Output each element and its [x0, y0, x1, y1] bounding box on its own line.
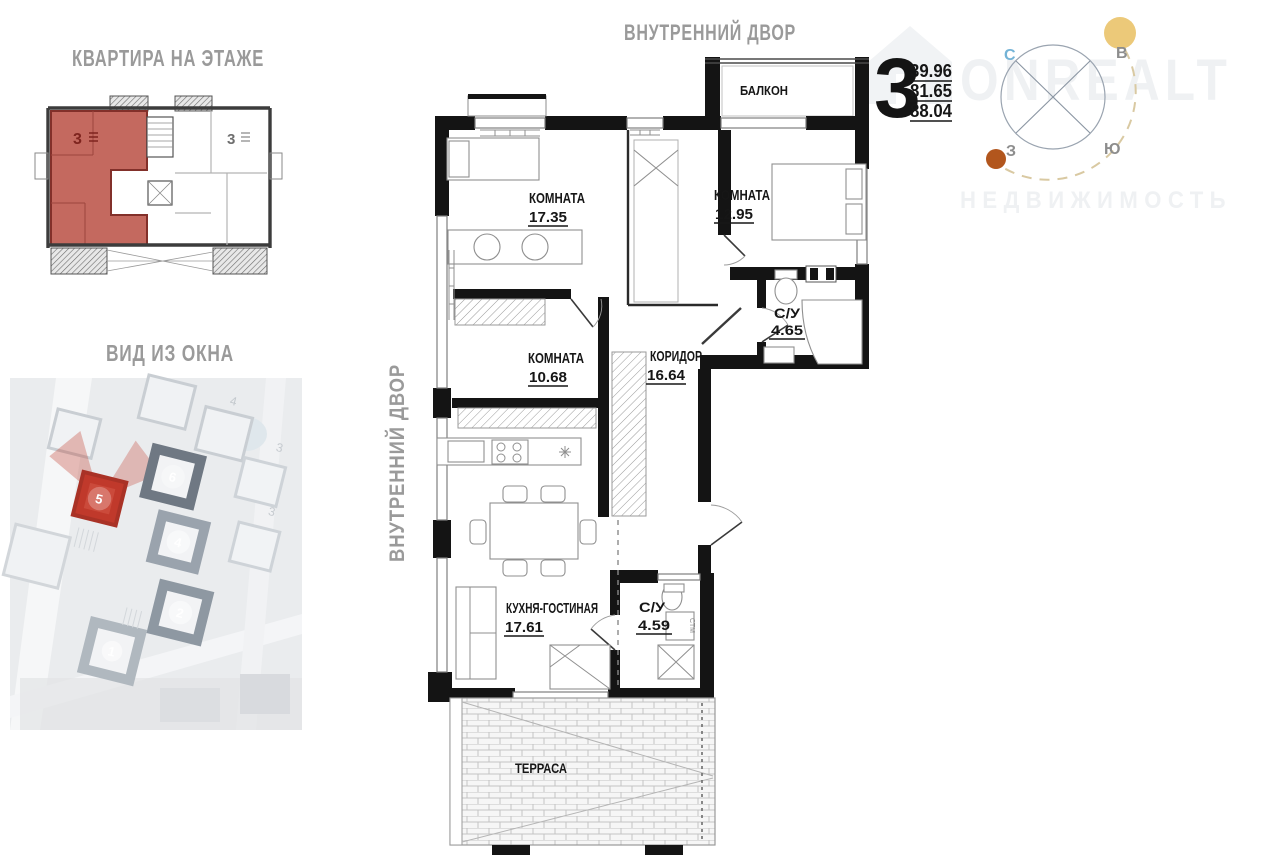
map-building-1: 1	[83, 622, 141, 680]
total-area-value: 88.04	[910, 101, 952, 121]
bathroom1-area: 4.65	[771, 322, 803, 338]
terrace-label: ТЕРРАСА	[515, 760, 567, 776]
mini-area-marks	[241, 133, 250, 141]
map-building-5-highlighted: 5	[73, 472, 126, 525]
map-building	[195, 407, 252, 461]
floor-overview-title: КВАРТИРА НА ЭТАЖЕ	[72, 45, 264, 71]
room3-area: 10.68	[529, 369, 567, 386]
pillow	[846, 169, 862, 199]
sink	[764, 347, 794, 363]
kitchen-area: 17.61	[505, 619, 543, 636]
corridor-name: КОРИДОР	[650, 348, 702, 365]
bathroom2-door-arc	[591, 615, 615, 629]
balcony: БАЛКОН	[705, 57, 869, 119]
room2-door-arc	[724, 256, 745, 265]
entrance-door-leaf	[711, 522, 742, 545]
map-building-6: 6	[145, 449, 201, 505]
watermark-subtitle: НЕДВИЖИМОСТЬ	[960, 187, 1232, 214]
compass-west-label: З	[1006, 143, 1016, 160]
chair	[474, 234, 500, 260]
room1-area: 17.35	[529, 209, 567, 226]
bathroom1-name: С/У	[774, 305, 800, 321]
main-floor-plan: БАЛКОН	[428, 57, 869, 855]
map-building	[138, 375, 195, 429]
terrace: ТЕРРАСА	[450, 698, 715, 855]
balcony-label: БАЛКОН	[740, 83, 788, 98]
map-satellite-block	[160, 688, 220, 722]
neighbor-apartment-walls	[175, 111, 267, 245]
mini-apartment-number: 3	[73, 131, 82, 148]
map-building	[229, 522, 279, 571]
wardrobe	[455, 299, 545, 325]
map-satellite-block	[240, 674, 290, 714]
room1-name: КОМНАТА	[529, 190, 585, 207]
map-building	[3, 524, 70, 588]
coat-closet	[458, 408, 596, 428]
mini-side-balcony	[270, 153, 282, 179]
compass-south-label: Ю	[1104, 141, 1121, 158]
apartment-area-value: 81.65	[910, 81, 952, 101]
closet-fold-marks	[634, 150, 678, 186]
chair	[580, 520, 596, 544]
courtyard-label-left: ВНУТРЕННИЙ ДВОР	[385, 364, 409, 562]
room3-name: КОМНАТА	[528, 350, 584, 367]
room2-area: 12.95	[715, 206, 753, 223]
bathroom2-name: С/У	[639, 599, 665, 615]
mini-terrace	[213, 248, 267, 274]
corridor-area: 16.64	[647, 367, 686, 384]
toilet-tank	[664, 584, 684, 592]
courtyard-label-top: ВНУТРЕННИЙ ДВОР	[624, 20, 796, 45]
pillow	[846, 204, 862, 234]
terrace-post	[492, 845, 530, 855]
highlighted-apartment	[51, 111, 147, 245]
chair	[470, 520, 486, 544]
radiator	[630, 130, 660, 135]
living-area-value: 39.96	[910, 61, 952, 81]
room3-door-leaf	[571, 299, 593, 327]
mini-floor-plan: 3 3	[35, 96, 282, 274]
map-building-2: 2	[153, 585, 209, 641]
washing-machine-label: СТМ	[688, 618, 695, 633]
floorplan-page: ONREALT НЕДВИЖИМОСТЬ С В З Ю 3 39.96 81.…	[0, 0, 1280, 855]
room2-name: КОМНАТА	[714, 187, 770, 204]
chair	[541, 486, 565, 502]
bathroom2-area: 4.59	[638, 617, 670, 633]
closet	[634, 140, 678, 302]
terrace-planter	[450, 698, 462, 845]
upper-ledge-wall	[468, 94, 546, 99]
mini-terrace	[51, 248, 107, 274]
chair	[503, 560, 527, 576]
sun-position-west-dot	[986, 149, 1006, 169]
mini-side-balcony	[35, 153, 48, 179]
angled-partition	[702, 308, 741, 344]
room2-door-leaf	[724, 235, 745, 256]
map-building-4: 4	[152, 515, 205, 568]
toilet	[775, 278, 797, 304]
corridor-wardrobe	[612, 352, 646, 516]
kitchen-sink	[448, 441, 484, 462]
corner-bathtub	[802, 300, 862, 364]
compass-east-label: В	[1116, 45, 1128, 62]
site-map: 6 5 4 2 1 4	[0, 350, 310, 730]
entrance-door-arc	[711, 505, 742, 522]
radiator	[480, 130, 540, 136]
kitchen-name: КУХНЯ-ГОСТИНАЯ	[506, 600, 598, 617]
mini-neighbor-number: 3	[227, 131, 235, 148]
balcony-railing	[705, 59, 869, 63]
chair	[503, 486, 527, 502]
chair	[541, 560, 565, 576]
window-view-title: ВИД ИЗ ОКНА	[106, 340, 234, 366]
terrace-post	[645, 845, 683, 855]
dining-table	[490, 503, 578, 559]
map-building	[235, 458, 285, 507]
compass-north-label: С	[1004, 47, 1016, 64]
desk	[448, 230, 582, 264]
pillow	[449, 141, 469, 177]
chair	[522, 234, 548, 260]
mini-lower-terrace-lines	[107, 250, 213, 271]
